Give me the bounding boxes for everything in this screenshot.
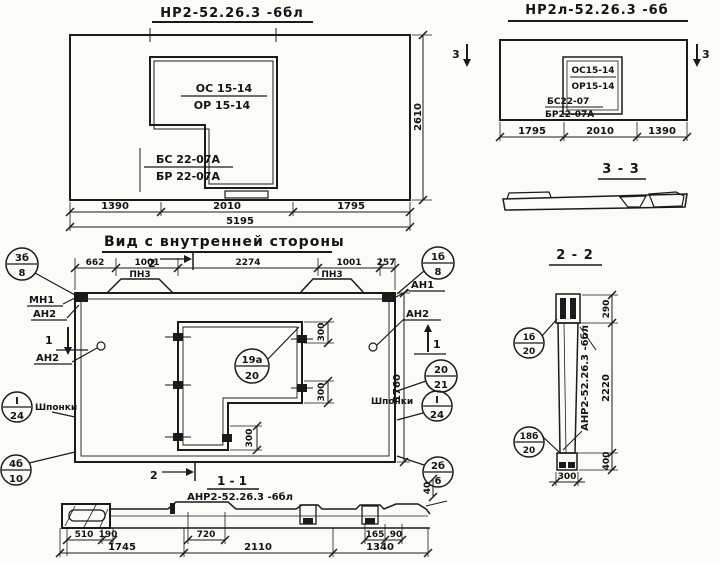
channel-foot: [303, 518, 313, 524]
panel-outline: [75, 293, 395, 462]
svg-text:I: I: [15, 396, 19, 407]
cut-arrow-icon: [693, 59, 701, 67]
panel-outline: [500, 40, 687, 120]
dim: 2274: [235, 258, 260, 268]
svg-text:18б: 18б: [520, 431, 539, 442]
dim-300: 300: [558, 472, 577, 482]
top-detail-bar: [560, 298, 566, 319]
svg-text:20: 20: [434, 365, 448, 376]
plan-mirror-title: НР2л-52.26.3 -6б: [525, 3, 669, 18]
dim-400: 400: [602, 452, 612, 471]
section-1-1-label: АНР2-52.26.3 -6бл: [187, 491, 293, 503]
cut-arrow-icon: [64, 347, 72, 355]
panel-outline: [70, 35, 410, 200]
dim: 1001: [336, 258, 361, 268]
plan-view-mirrored: НР2л-52.26.3 -6б 3 3 ОС15-14 ОР15-14 БС2…: [452, 3, 710, 141]
dim: 2010: [213, 201, 241, 212]
column-body: [558, 323, 578, 453]
channel-foot: [365, 518, 375, 524]
section-2-2-title: 2 - 2: [556, 248, 594, 263]
cut-arrow-icon: [186, 468, 194, 476]
svg-text:1б: 1б: [523, 332, 536, 343]
svg-text:8: 8: [435, 267, 442, 278]
dim-height: 2610: [413, 103, 424, 131]
opening-contour: [150, 57, 277, 188]
section-marker-3-right: 3: [702, 48, 710, 61]
section-1-1-title: 1 - 1: [217, 474, 247, 488]
foot-bar: [559, 462, 566, 468]
dim: 90: [390, 530, 403, 540]
svg-text:24: 24: [430, 410, 444, 421]
column-inner-line: [564, 323, 566, 453]
mark-bs: БС 22-07А: [156, 153, 220, 166]
bottom-key-detail: [225, 191, 268, 198]
svg-text:20: 20: [523, 347, 536, 357]
label-an2: АН2: [33, 309, 56, 320]
hatch-lines: [65, 505, 108, 527]
svg-text:20: 20: [245, 371, 259, 382]
mark-bs: БС22-07: [547, 97, 589, 107]
dim: 165: [366, 530, 385, 540]
svg-text:6: 6: [435, 476, 442, 487]
dim-300: 300: [317, 323, 327, 342]
svg-text:1б: 1б: [431, 251, 445, 263]
foot-bar: [568, 462, 575, 468]
mark-br: БР 22-07А: [156, 170, 220, 183]
dim: 1390: [101, 201, 129, 212]
svg-text:I: I: [435, 395, 439, 406]
profile-notch: [620, 196, 646, 207]
callout-I-24-right: Шпонки I 24: [371, 391, 452, 421]
inner-view: Вид с внутренней стороны 2 662 1001 2274…: [1, 234, 457, 487]
label-an2: АН2: [406, 309, 429, 320]
anchor-mark: [97, 342, 105, 350]
dim-total: 5195: [226, 216, 254, 227]
section-1-1: 1 - 1 АНР2-52.26.3 -6бл 40 510 190 720 1…: [56, 474, 447, 557]
dim: 190: [99, 530, 118, 540]
dim: 257: [377, 258, 396, 268]
dim: 2110: [244, 542, 272, 553]
lifting-loop-icon: [107, 279, 173, 293]
label-an1: АН1: [411, 280, 434, 291]
svg-text:21: 21: [434, 380, 448, 391]
callout-1b-20: 1б 20: [514, 319, 557, 358]
section-marker-2-bottom: 2: [150, 469, 158, 482]
svg-text:24: 24: [10, 411, 24, 422]
svg-text:2б: 2б: [431, 460, 445, 472]
opening-contour-inner: [183, 327, 297, 445]
callout-20-21: 20 21: [397, 360, 457, 392]
callout-18b-20: 18б 20: [514, 427, 559, 457]
dim: 662: [86, 258, 105, 268]
slot-detail: [69, 510, 105, 521]
mark-or: ОР 15-14: [194, 99, 251, 112]
dim: 720: [197, 530, 216, 540]
dim: 1795: [337, 201, 365, 212]
leader: [396, 290, 445, 297]
profile-strip: [503, 194, 687, 210]
leader: [426, 501, 447, 506]
svg-text:19а: 19а: [242, 355, 263, 366]
dim: 1795: [518, 126, 546, 137]
label-shponki: Шпонки: [35, 403, 77, 413]
top-detail-bar: [570, 298, 576, 319]
cut-arrow-icon: [424, 324, 432, 332]
callout-I-24-left: I 24 Шпонки: [2, 392, 77, 422]
dim: 1390: [648, 126, 676, 137]
profile-top: [110, 502, 430, 514]
lifting-loop-icon: [300, 279, 364, 293]
dim: 1001: [134, 258, 159, 268]
label-shponki: Шпонки: [371, 397, 413, 407]
mark-or: ОР15-14: [571, 82, 614, 92]
section-marker-3-left: 3: [452, 48, 460, 61]
anchor-mark: [369, 343, 377, 351]
dim-2220: 2220: [601, 374, 612, 402]
plan-view-title: НР2-52.26.3 -6бл: [160, 6, 304, 21]
dim-40: 40: [423, 482, 433, 495]
section-marker-1-right: 1: [433, 338, 441, 351]
inner-view-title: Вид с внутренней стороны: [104, 234, 345, 250]
dim-300: 300: [245, 429, 255, 448]
svg-text:4б: 4б: [9, 458, 23, 470]
callout-4b-10: 4б 10: [1, 452, 75, 485]
dim-290: 290: [602, 300, 612, 319]
cut-arrow-icon: [463, 59, 471, 67]
dim: 2010: [586, 126, 614, 137]
svg-text:3б: 3б: [15, 252, 29, 264]
dim-300: 300: [317, 383, 327, 402]
drawing-sheet: НР2-52.26.3 -6бл ОС 15-14 ОР 15-14 БС 22…: [0, 0, 720, 563]
dim: 1745: [108, 542, 136, 553]
mark-br: БР22-07А: [545, 110, 594, 120]
section-2-2: 2 - 2 АНР2-52.26.3 -6бл 290 2220 400 300…: [514, 248, 618, 486]
svg-text:10: 10: [9, 474, 23, 485]
callout-3b-8: 3б 8: [6, 248, 75, 295]
section-marker-1-left: 1: [45, 334, 53, 347]
section-2-2-label: АНР2-52.26.3 -6бл: [579, 325, 591, 431]
dim: 1340: [366, 542, 394, 553]
mark-os: ОС 15-14: [196, 82, 253, 95]
dim: 510: [75, 530, 94, 540]
mark-os: ОС15-14: [571, 66, 614, 76]
top-detail: [556, 294, 580, 323]
plan-view: НР2-52.26.3 -6бл ОС 15-14 ОР 15-14 БС 22…: [66, 6, 432, 231]
drawing-canvas: НР2-52.26.3 -6бл ОС 15-14 ОР 15-14 БС 22…: [0, 0, 720, 563]
label-mn1: МН1: [29, 295, 54, 306]
anchor-detail: [170, 503, 175, 514]
svg-text:8: 8: [19, 268, 26, 279]
svg-text:20: 20: [523, 446, 536, 456]
corner-plate: [382, 293, 395, 302]
callout-19a-20: 19а 20: [235, 327, 299, 383]
section-3-3: 3 - 3: [503, 162, 687, 210]
section-3-3-title: 3 - 3: [602, 162, 640, 177]
label-an2: АН2: [36, 353, 59, 364]
opening-contour: [178, 322, 302, 450]
cut-arrow-icon: [184, 255, 192, 263]
